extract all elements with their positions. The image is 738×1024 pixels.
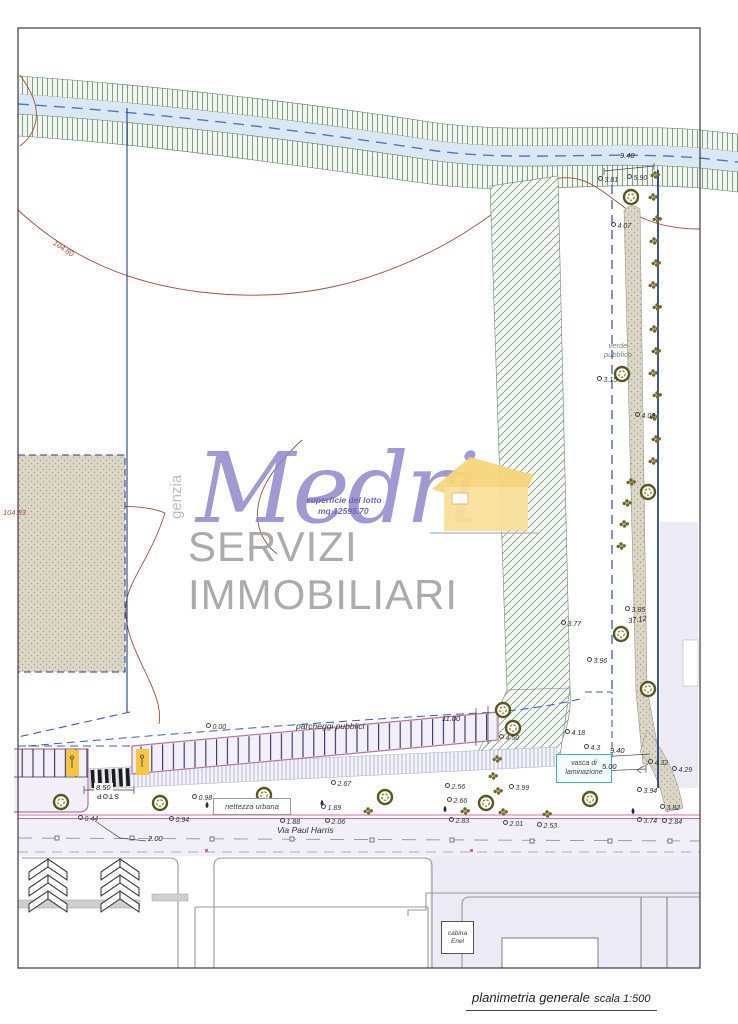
spot-elevation: 3.96 [587, 657, 607, 665]
caption-title: planimetria generale [472, 990, 590, 1005]
spot-elevation: 4.29 [672, 766, 692, 774]
spot-elevation: 3.15 [597, 376, 617, 384]
spot-elevation: 4.07 [611, 222, 631, 230]
lot-surface-label: superficie del lotto mq 12595.70 [306, 495, 382, 516]
text-overlay: parcheggi pubblici verde pubblico vasca … [0, 0, 738, 1024]
spot-elevation: 2.83 [449, 817, 469, 825]
spot-elevation: 4.18 [565, 729, 585, 737]
public-green-label-line1: verde [609, 341, 628, 350]
spot-elevation: 1.89 [321, 804, 341, 812]
spot-elevation: 2.06 [325, 818, 345, 826]
spot-elevation: 1.88 [280, 818, 300, 826]
lot-surface-text: superficie del lotto [306, 495, 382, 506]
spot-elevation: 4.50 [499, 734, 519, 742]
spot-elevation: 4.09 [635, 412, 655, 420]
dimension-label: 5.00 [602, 762, 617, 771]
spot-elevation: 3.77 [561, 620, 581, 628]
spot-elevation: 3.85 [625, 606, 645, 614]
street-name-label: Via Paul Harris [277, 825, 334, 835]
spot-elevation: 2.56 [445, 783, 465, 791]
dimension-label: 37.12 [627, 614, 647, 626]
parking-area-label: parcheggi pubblici [296, 721, 365, 731]
spot-elevation: 2.67 [331, 780, 351, 788]
dimension-label: 8.50 [94, 783, 113, 792]
lot-surface-value: mq 12595.70 [306, 506, 382, 517]
public-green-label-line2: pubblico [604, 350, 632, 359]
waste-collection-box: nettezza urbana [213, 798, 291, 815]
waste-collection-label: nettezza urbana [225, 802, 279, 811]
enel-cabin-label-line1: cabina [448, 930, 467, 938]
spot-elevation: 3.94 [637, 787, 657, 795]
stop-road-marking: STOP [96, 792, 119, 799]
spot-elevation: 3.81 [598, 176, 618, 184]
detention-basin-label-line2: laminazione [565, 769, 602, 777]
spot-elevation: 2.84 [662, 818, 682, 826]
enel-cabin-box: cabina Enel [441, 921, 474, 954]
spot-elevation: 3.74 [637, 817, 657, 825]
public-green-label: verde pubblico [604, 341, 632, 360]
plan-sheet: genzia Medri SERVIZI IMMOBILIARI parcheg… [0, 0, 738, 1024]
spot-elevation: 4.3 [584, 744, 600, 752]
dimension-label: 11.00 [442, 714, 460, 723]
spot-elevation: 3.82 [660, 804, 680, 812]
detention-basin-label-line1: vasca di [571, 760, 597, 768]
contour-label: 104.80 [51, 238, 75, 258]
spot-elevation: 2.53 [537, 822, 557, 830]
contour-label: 104.83 [3, 508, 26, 517]
spot-elevation: 2.01 [503, 820, 523, 828]
spot-elevation: 0.94 [169, 816, 189, 824]
caption-scale: scala 1:500 [594, 993, 650, 1005]
spot-elevation: 0.98 [192, 794, 212, 802]
dimension-label: 9.40 [620, 151, 635, 160]
spot-elevation: 2.66 [447, 797, 467, 805]
spot-elevation: 0.44 [78, 815, 98, 823]
spot-elevation: 0.00 [206, 723, 226, 731]
drawing-caption: planimetria generale scala 1:500 [466, 989, 657, 1011]
dimension-label: 9.40 [610, 746, 625, 755]
spot-elevation: 4.32 [648, 759, 668, 767]
dimension-label: 2.00 [148, 834, 163, 843]
spot-elevation: 3.99 [509, 784, 529, 792]
enel-cabin-label-line2: Enel [451, 938, 464, 946]
spot-elevation: 5.90 [627, 174, 647, 182]
